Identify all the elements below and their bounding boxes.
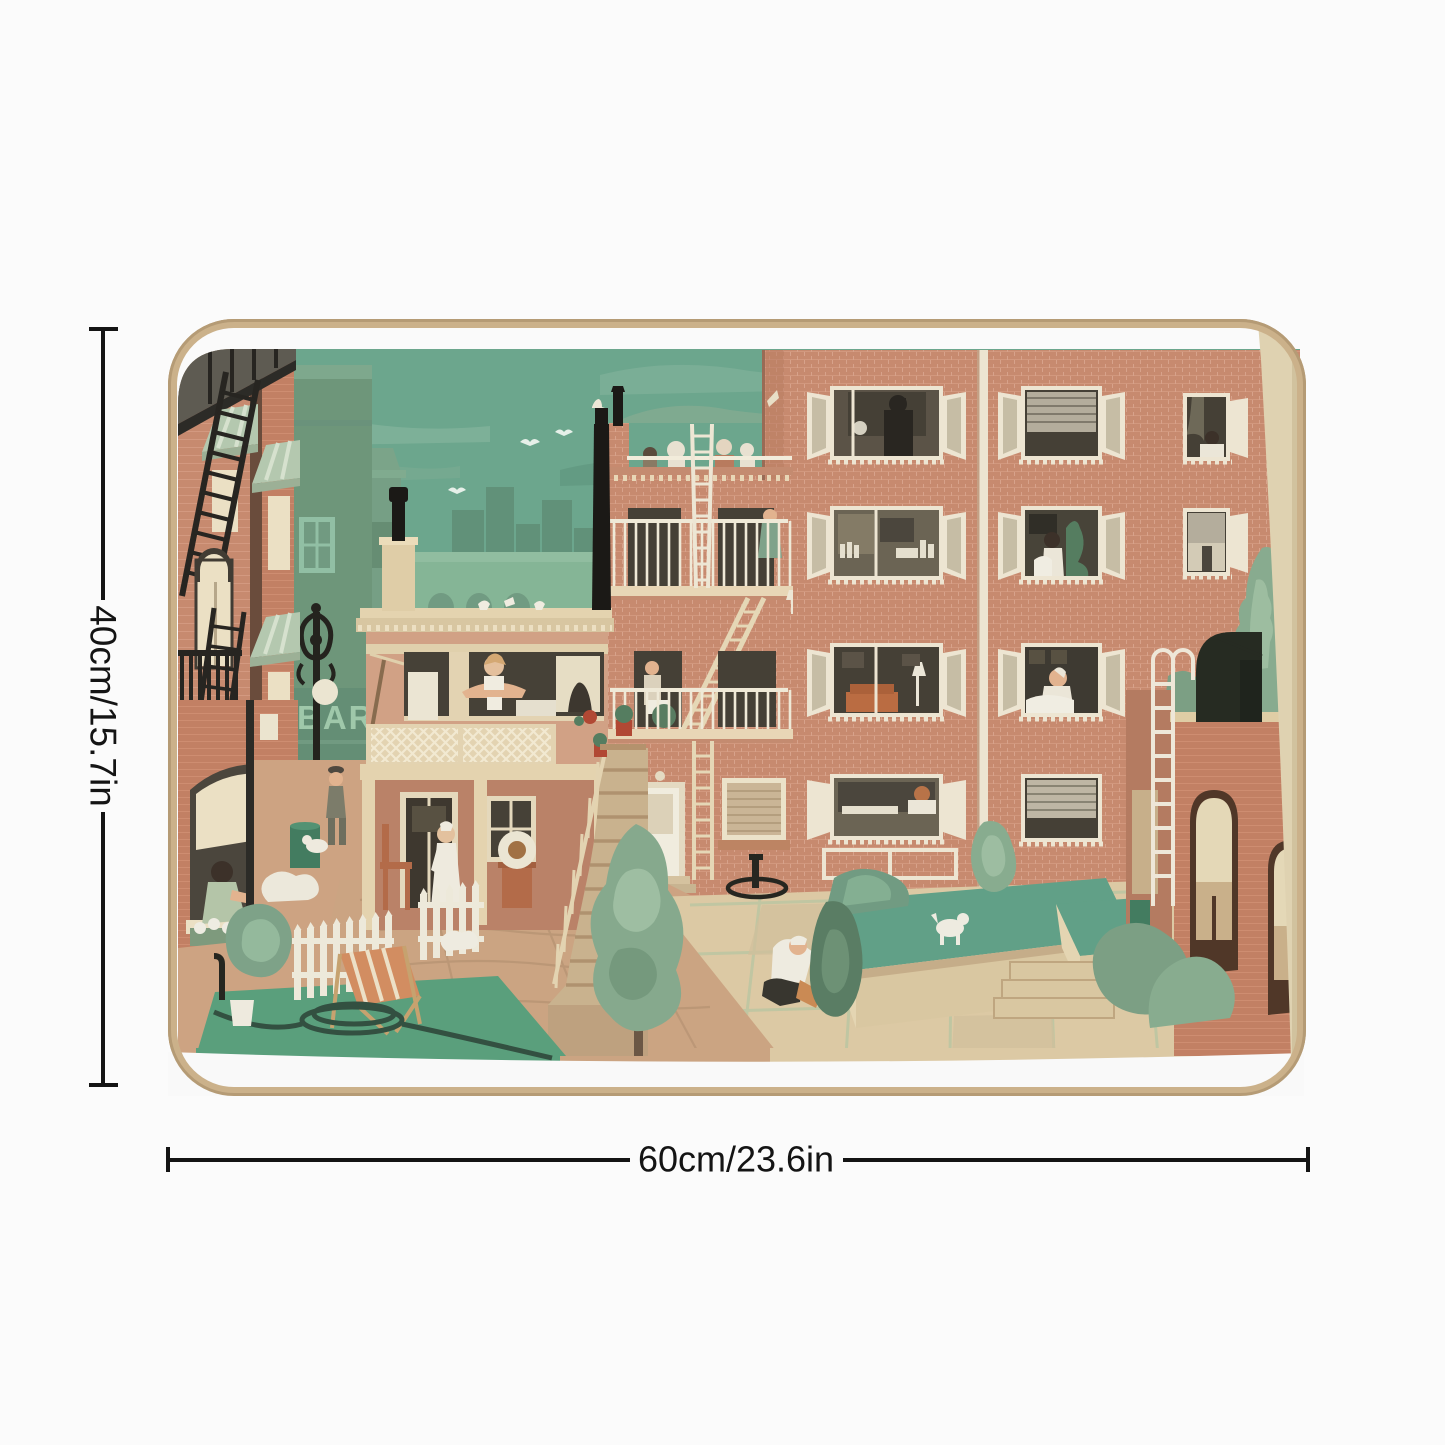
svg-text:BAR: BAR [297,699,375,736]
svg-text:60cm/23.6in: 60cm/23.6in [638,1139,834,1180]
svg-text:40cm/15.7in: 40cm/15.7in [83,605,124,807]
